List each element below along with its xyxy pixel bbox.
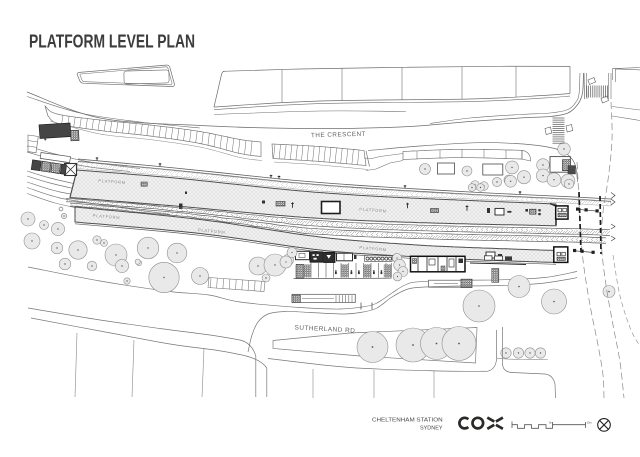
svg-text:CHELTENHAM STATION: CHELTENHAM STATION (372, 417, 443, 423)
svg-text:PLATFORM LEVEL PLAN: PLATFORM LEVEL PLAN (29, 31, 195, 52)
svg-text:SYDNEY: SYDNEY (420, 425, 443, 431)
svg-text:5m: 5m (549, 420, 554, 424)
svg-text:10m: 10m (587, 420, 593, 424)
svg-text:THE CRESCENT: THE CRESCENT (311, 131, 366, 139)
